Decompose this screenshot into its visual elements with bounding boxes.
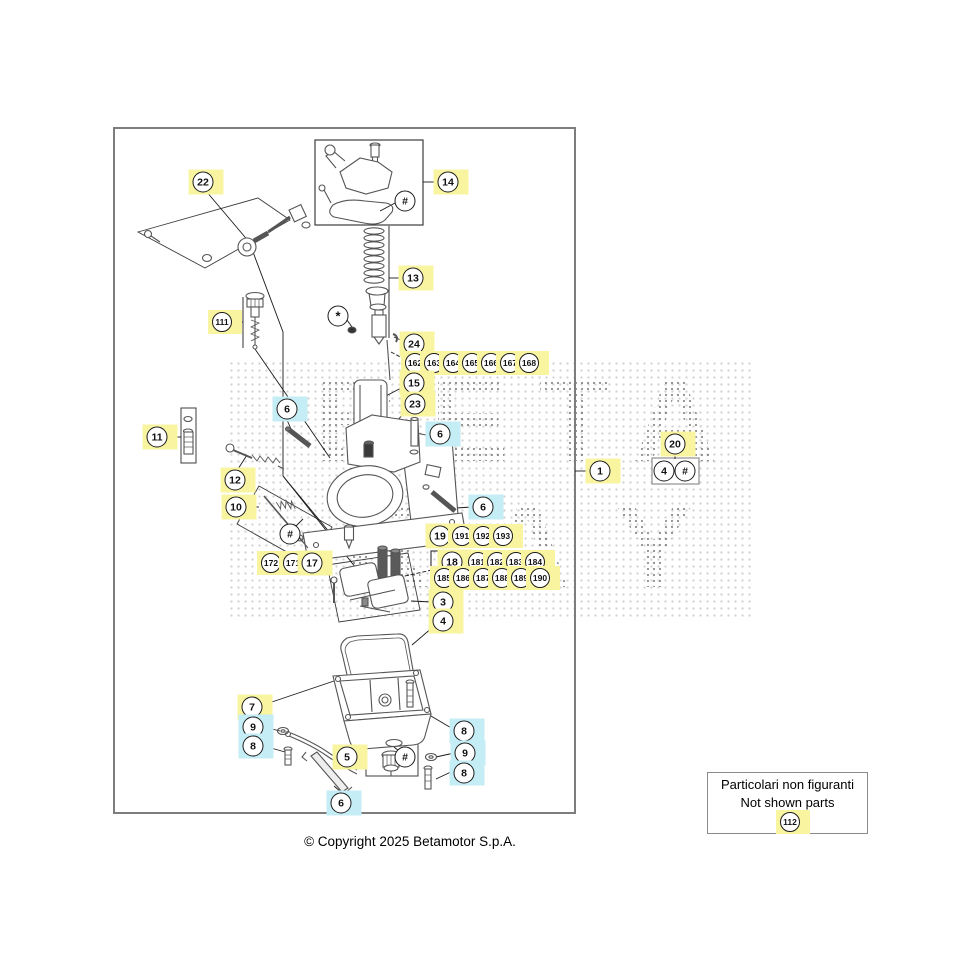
callout-15[interactable]: 15 (404, 373, 425, 394)
callout-label: 4 (433, 611, 454, 632)
callout-1[interactable]: 1 (590, 461, 611, 482)
callout-label: 172 (261, 553, 281, 573)
callout-label: 6 (473, 497, 494, 518)
callout-8[interactable]: 8 (454, 721, 475, 742)
callout-label: 12 (225, 470, 246, 491)
callout-*[interactable]: * (328, 306, 349, 327)
callout-14[interactable]: 14 (438, 172, 459, 193)
callout-label: 15 (404, 373, 425, 394)
callout-label: 8 (454, 763, 475, 784)
callout-label: * (328, 306, 349, 327)
callout-label: 1 (590, 461, 611, 482)
callout-13[interactable]: 13 (403, 268, 424, 289)
callout-label: # (675, 461, 696, 482)
callout-#[interactable]: # (280, 524, 301, 545)
callout-10[interactable]: 10 (226, 497, 247, 518)
callout-168[interactable]: 168 (519, 353, 539, 373)
callout-193[interactable]: 193 (493, 526, 513, 546)
callout-8[interactable]: 8 (454, 763, 475, 784)
callout-17[interactable]: 17 (302, 553, 323, 574)
callout-12[interactable]: 12 (225, 470, 246, 491)
callout-112[interactable]: 112 (780, 812, 800, 832)
callout-4[interactable]: 4 (654, 461, 675, 482)
callout-label: 6 (430, 424, 451, 445)
callout-label: 168 (519, 353, 539, 373)
callout-6[interactable]: 6 (277, 399, 298, 420)
callout-6[interactable]: 6 (430, 424, 451, 445)
callout-label: 112 (780, 812, 800, 832)
callout-#[interactable]: # (675, 461, 696, 482)
callout-22[interactable]: 22 (193, 172, 214, 193)
callout-label: 20 (665, 434, 686, 455)
callout-label: 6 (331, 793, 352, 814)
callout-label: # (395, 191, 416, 212)
callout-172[interactable]: 172 (261, 553, 281, 573)
callout-label: 10 (226, 497, 247, 518)
callout-label: 23 (405, 394, 426, 415)
callout-111[interactable]: 111 (212, 312, 232, 332)
callout-label: 17 (302, 553, 323, 574)
callout-label: 13 (403, 268, 424, 289)
callout-6[interactable]: 6 (331, 793, 352, 814)
callout-23[interactable]: 23 (405, 394, 426, 415)
callout-#[interactable]: # (395, 191, 416, 212)
callout-label: 5 (337, 747, 358, 768)
callout-#[interactable]: # (395, 747, 416, 768)
callout-label: 111 (212, 312, 232, 332)
callout-label: 14 (438, 172, 459, 193)
callout-20[interactable]: 20 (665, 434, 686, 455)
callout-5[interactable]: 5 (337, 747, 358, 768)
callout-label: 22 (193, 172, 214, 193)
callout-label: 6 (277, 399, 298, 420)
callout-layer: 2214#13*11124162163164165166167168152366… (0, 0, 980, 980)
callout-4[interactable]: 4 (433, 611, 454, 632)
callout-label: 8 (454, 721, 475, 742)
callout-label: 8 (243, 736, 264, 757)
callout-6[interactable]: 6 (473, 497, 494, 518)
callout-11[interactable]: 11 (147, 427, 168, 448)
callout-label: 190 (530, 568, 550, 588)
callout-label: 193 (493, 526, 513, 546)
callout-label: 11 (147, 427, 168, 448)
callout-8[interactable]: 8 (243, 736, 264, 757)
callout-190[interactable]: 190 (530, 568, 550, 588)
callout-label: # (280, 524, 301, 545)
callout-label: 4 (654, 461, 675, 482)
callout-label: # (395, 747, 416, 768)
